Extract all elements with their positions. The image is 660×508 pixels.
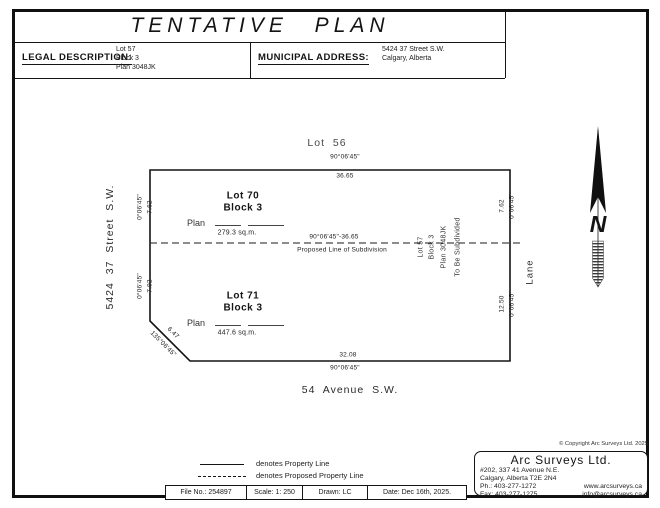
legal-description-values: Lot 57 Block 3 Plan 3048JK: [116, 45, 156, 72]
firm-address-line1: #202, 337 41 Avenue N.E.: [480, 467, 642, 475]
street-bottom-label: 54 Avenue S.W.: [302, 384, 399, 396]
municipal-address-values: 5424 37 Street S.W. Calgary, Alberta: [382, 45, 445, 63]
legend-dashed-label: denotes Proposed Property Line: [256, 471, 364, 480]
dim-right-top-bearing: 0°06'45": [509, 193, 516, 219]
plan-blank-line: [248, 317, 284, 326]
drawing-info-bar: File No.: 254897 Scale: 1: 250 Drawn: LC…: [165, 485, 467, 500]
legal-lot: Lot 57: [116, 45, 156, 54]
plan-blank-line: [215, 217, 241, 226]
firm-website: www.arcsurveys.ca: [584, 483, 642, 491]
header-bottom-divider: [15, 78, 505, 79]
drawn-by: Drawn: LC: [303, 486, 368, 499]
dim-left-bottom-distance: 7.92: [147, 279, 154, 292]
header-middle-divider: [250, 42, 251, 78]
title-divider: [15, 42, 505, 43]
page-title: TENTATIVE PLAN: [15, 14, 505, 38]
legal-plan: Plan 3048JK: [116, 63, 156, 72]
header-right-divider: [505, 11, 506, 78]
remainder-lot: Lot 57: [418, 236, 425, 257]
lot71-block: Block 3: [223, 303, 262, 314]
lane-label: Lane: [525, 259, 536, 284]
remainder-plan: Plan 3048JK: [441, 226, 448, 269]
municipal-address-label: MUNICIPAL ADDRESS:: [258, 52, 369, 65]
dim-left-bottom-bearing: 0°06'45": [137, 273, 144, 299]
dim-left-top-bearing: 0°06'45": [137, 194, 144, 220]
firm-name: Arc Surveys Ltd.: [480, 453, 642, 467]
street-left-label: 5424 37 Street S.W.: [104, 185, 116, 310]
adjacent-lot-label: Lot 56: [307, 137, 346, 149]
firm-title-block: Arc Surveys Ltd. #202, 337 41 Avenue N.E…: [474, 451, 648, 496]
scale: Scale: 1: 250: [247, 486, 303, 499]
lot70-plan-label: Plan: [187, 218, 205, 228]
firm-address-line2: Calgary, Alberta T2E 2N4: [480, 475, 642, 483]
copyright-notice: © Copyright Arc Surveys Ltd. 2025: [559, 441, 648, 447]
legend-solid-label: denotes Property Line: [256, 459, 329, 468]
plan-blank-line: [215, 317, 241, 326]
lot70-plan-row: Plan: [187, 217, 284, 228]
lot71-area: 447.6 sq.m.: [218, 330, 257, 337]
lot70-area: 279.3 sq.m.: [218, 230, 257, 237]
dim-top-distance: 36.65: [336, 173, 353, 180]
lot71-plan-row: Plan: [187, 317, 284, 328]
legend-dashed-line-sample: [198, 476, 246, 477]
dim-right-bottom-bearing: 0°06'45": [509, 291, 516, 317]
remainder-block: Block 3: [429, 234, 436, 259]
subdivision-label: Proposed Line of Subdivision: [297, 247, 387, 254]
dim-right-bottom-distance: 12.50: [499, 295, 506, 312]
lot71-name: Lot 71: [227, 291, 259, 302]
dim-left-top-distance: 7.62: [147, 200, 154, 213]
file-number: File No.: 254897: [166, 486, 247, 499]
remainder-note: To Be Subdivided: [455, 217, 462, 276]
firm-phone: Ph.: 403-277-1272: [480, 483, 536, 491]
firm-fax: Fax: 403-277-1275: [480, 491, 537, 499]
municipal-address-box: MUNICIPAL ADDRESS:: [258, 47, 369, 65]
firm-email: info@arcsurveys.ca: [582, 491, 642, 499]
lot70-block: Block 3: [223, 203, 262, 214]
lot71-plan-label: Plan: [187, 318, 205, 328]
municipal-street: 5424 37 Street S.W.: [382, 45, 445, 54]
plan-blank-line: [248, 217, 284, 226]
dim-bottom-distance: 32.08: [339, 352, 356, 359]
legend-solid-line-sample: [200, 464, 244, 465]
dim-right-top-distance: 7.62: [499, 199, 506, 212]
legal-block: Block 3: [116, 54, 156, 63]
municipal-city: Calgary, Alberta: [382, 54, 445, 63]
lot70-name: Lot 70: [227, 191, 259, 202]
date: Date: Dec 16th, 2025.: [368, 486, 466, 499]
dim-bottom-bearing: 90°06'45": [330, 365, 360, 372]
tentative-plan-sheet: TENTATIVE PLAN LEGAL DESCRIPTION: Lot 57…: [0, 0, 660, 508]
dim-top-bearing: 90°06'45": [330, 154, 360, 161]
subdivision-dimension: 90°06'45"-36.65: [309, 234, 358, 241]
